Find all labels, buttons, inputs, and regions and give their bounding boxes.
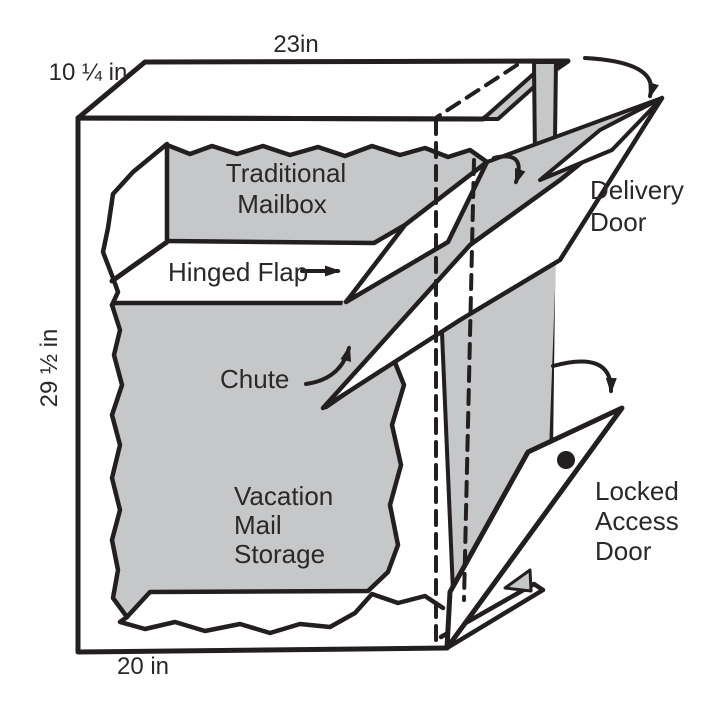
lock-dot [557, 451, 575, 469]
delivery-door-label-line1: Delivery [590, 175, 684, 205]
traditional-mailbox-label-line2: Mailbox [237, 189, 327, 219]
locked-access-door-label-line2: Access [595, 506, 679, 536]
shelf-left-edge [112, 242, 167, 281]
vacation-storage-label-line3: Storage [234, 539, 325, 569]
traditional-mailbox-label-line1: Traditional [226, 158, 346, 188]
vacation-storage-label-line1: Vacation [234, 481, 333, 511]
dim-bottom-width: 20 in [117, 653, 169, 680]
locked-door-swing-arrow [553, 362, 611, 391]
locked-access-door-label-line1: Locked [595, 476, 679, 506]
torn-edge-left [103, 144, 167, 305]
vacation-storage-label-line2: Mail [234, 510, 282, 540]
dim-top-width: 23in [273, 31, 318, 58]
hinged-flap-label: Hinged Flap [168, 257, 308, 287]
dim-top-depth: 10 ¼ in [49, 59, 128, 86]
torn-edge-bottom [120, 594, 443, 633]
delivery-door-label-line2: Door [590, 207, 647, 237]
dim-height: 29 ½ in [36, 329, 63, 408]
diagram-canvas: 23in 10 ¼ in 29 ½ in 20 in Traditional M… [0, 0, 720, 720]
delivery-door-swing-arrow [585, 58, 651, 96]
locked-access-door-label-line3: Door [595, 536, 652, 566]
door-hinge-detail [505, 570, 531, 591]
mailbox-cutaway-diagram: 23in 10 ¼ in 29 ½ in 20 in Traditional M… [0, 0, 720, 720]
chute-label: Chute [220, 364, 289, 394]
